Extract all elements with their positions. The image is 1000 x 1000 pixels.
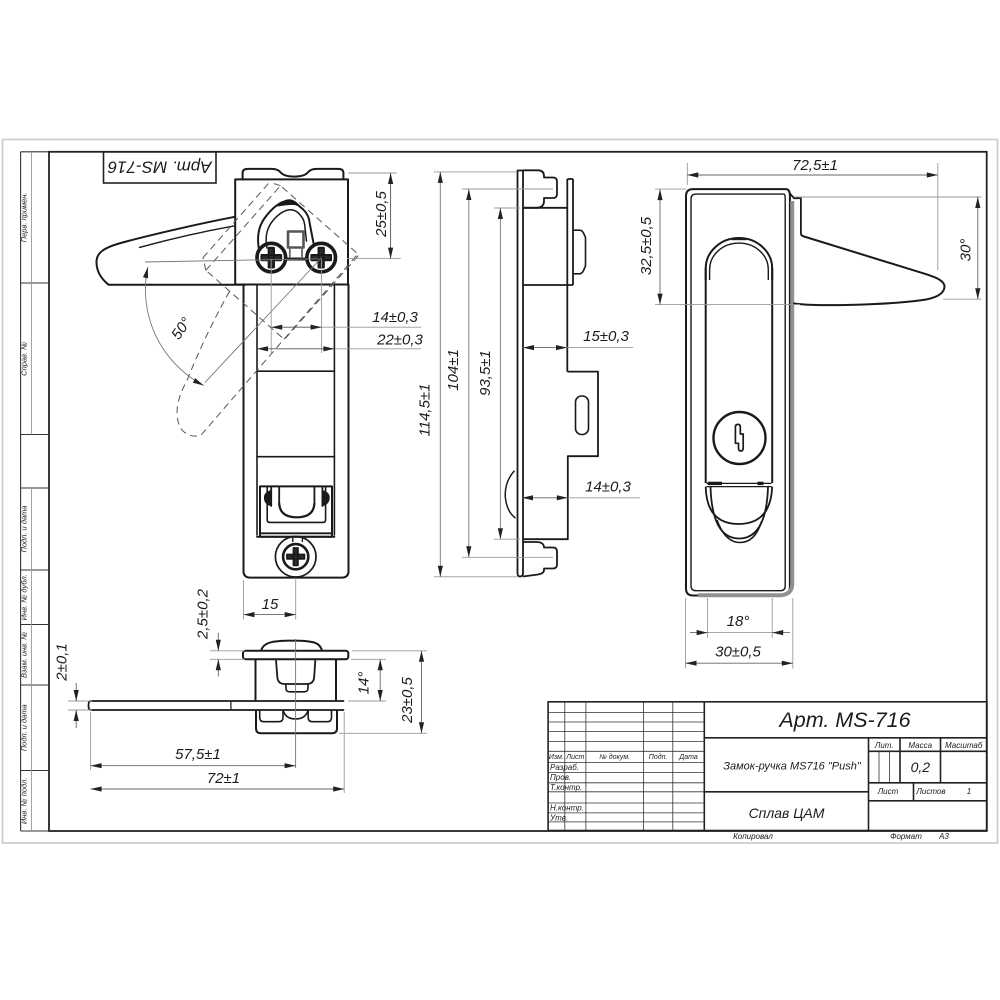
svg-text:30°: 30° — [958, 239, 975, 262]
svg-text:Замок-ручка MS716 "Push": Замок-ручка MS716 "Push" — [723, 761, 862, 773]
svg-text:14±0,3: 14±0,3 — [585, 479, 631, 496]
svg-text:Разраб.: Разраб. — [550, 763, 579, 772]
svg-text:14±0,3: 14±0,3 — [372, 309, 418, 326]
svg-text:Утв.: Утв. — [549, 814, 568, 823]
svg-text:Инв. № подл.: Инв. № подл. — [20, 778, 29, 825]
svg-text:Т.контр.: Т.контр. — [550, 783, 582, 792]
svg-text:15±0,3: 15±0,3 — [583, 328, 629, 345]
svg-text:14°: 14° — [356, 672, 373, 695]
svg-text:Лит.: Лит. — [874, 741, 894, 750]
svg-text:114,5±1: 114,5±1 — [417, 384, 434, 437]
svg-text:№ докум.: № докум. — [599, 753, 630, 761]
svg-text:Перв. примен.: Перв. примен. — [20, 192, 29, 242]
svg-text:23±0,5: 23±0,5 — [399, 676, 416, 723]
svg-text:Справ. №: Справ. № — [20, 342, 29, 376]
svg-text:93,5±1: 93,5±1 — [477, 350, 494, 396]
svg-text:Дата: Дата — [678, 754, 698, 761]
svg-text:Формат: Формат — [890, 832, 922, 841]
svg-text:Масса: Масса — [908, 741, 932, 750]
svg-text:15: 15 — [262, 596, 279, 613]
svg-text:Лист: Лист — [877, 787, 899, 796]
svg-text:0,2: 0,2 — [911, 759, 931, 775]
svg-text:Пров.: Пров. — [550, 773, 571, 782]
svg-text:Подп. и дата: Подп. и дата — [20, 704, 29, 751]
svg-text:Листов: Листов — [915, 787, 945, 796]
svg-text:Инв. № дубл.: Инв. № дубл. — [20, 574, 29, 620]
svg-text:2,5±0,2: 2,5±0,2 — [195, 588, 212, 640]
svg-text:Изм.: Изм. — [549, 754, 564, 761]
svg-text:32,5±0,5: 32,5±0,5 — [638, 216, 655, 275]
svg-text:Подп.: Подп. — [649, 753, 668, 761]
svg-text:Масштаб: Масштаб — [945, 741, 983, 750]
svg-text:72,5±1: 72,5±1 — [792, 157, 838, 174]
svg-text:Лист: Лист — [565, 754, 584, 761]
svg-text:Сплав ЦАМ: Сплав ЦАМ — [749, 805, 825, 821]
svg-text:22±0,3: 22±0,3 — [376, 332, 423, 349]
svg-text:Копировал: Копировал — [733, 832, 773, 841]
svg-text:2±0,1: 2±0,1 — [54, 643, 71, 681]
svg-text:72±1: 72±1 — [207, 770, 240, 787]
svg-text:Подп. и дата: Подп. и дата — [20, 506, 29, 553]
svg-text:Арт. MS-716: Арт. MS-716 — [777, 708, 910, 732]
svg-text:1: 1 — [967, 787, 971, 796]
svg-text:Н.контр.: Н.контр. — [550, 804, 584, 813]
svg-text:18°: 18° — [727, 613, 750, 630]
svg-text:А3: А3 — [938, 832, 949, 841]
svg-text:Взам. инв. №: Взам. инв. № — [20, 632, 29, 678]
svg-text:30±0,5: 30±0,5 — [715, 644, 761, 661]
svg-text:Арт. MS-716: Арт. MS-716 — [107, 158, 212, 177]
svg-text:104±1: 104±1 — [445, 349, 462, 391]
svg-text:57,5±1: 57,5±1 — [175, 746, 221, 763]
svg-text:25±0,5: 25±0,5 — [373, 190, 390, 237]
